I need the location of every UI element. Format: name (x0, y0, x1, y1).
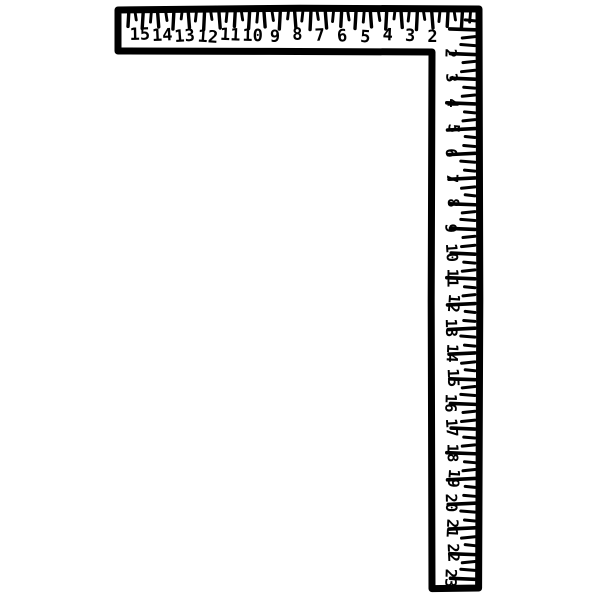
tick-mark (401, 12, 402, 27)
tick-mark (241, 12, 242, 20)
tick-mark (464, 345, 475, 346)
scale-number: 4 (382, 25, 393, 45)
scale-number: 6 (336, 26, 348, 47)
scale-number: 5 (444, 123, 463, 134)
tick-mark (432, 12, 433, 28)
tick-mark (463, 61, 475, 62)
scale-number: 13 (174, 26, 196, 47)
tick-mark (461, 219, 475, 220)
tick-mark (310, 12, 311, 30)
tick-mark (450, 29, 475, 30)
scale-number: 17 (442, 418, 461, 438)
framing-square-figure: 1514131211109876543223456789101112131415… (0, 0, 600, 600)
tick-mark (264, 12, 265, 27)
scale-number: 11 (444, 269, 462, 288)
tick-mark (462, 445, 475, 446)
scale-number: 11 (220, 25, 241, 46)
tick-mark (465, 370, 475, 371)
tick-mark (288, 12, 289, 19)
tick-mark (463, 295, 475, 296)
tick-mark (226, 12, 227, 22)
square-outline (118, 8, 480, 588)
scale-number: 6 (442, 148, 460, 158)
tick-mark (462, 561, 475, 562)
tick-mark (464, 437, 475, 438)
tick-mark (464, 495, 475, 496)
scale-number: 23 (441, 569, 459, 588)
tick-mark (135, 12, 136, 20)
scale-number: 21 (443, 518, 462, 537)
tick-mark (461, 44, 475, 45)
scale-number: 3 (442, 72, 461, 83)
tick-mark (464, 87, 475, 88)
tick-mark (341, 12, 342, 26)
tick-mark (462, 95, 475, 96)
tick-mark (464, 287, 475, 288)
tick-mark (465, 20, 475, 21)
scale-number: 8 (444, 198, 462, 208)
tick-mark (325, 12, 326, 28)
tick-mark (462, 387, 475, 388)
drawing-canvas: 1514131211109876543223456789101112131415… (0, 0, 600, 600)
tick-mark (464, 112, 475, 113)
tick-mark (394, 12, 395, 19)
tick-mark (464, 520, 475, 521)
tick-mark (463, 236, 475, 237)
tick-mark (408, 12, 409, 21)
tick-mark (465, 311, 475, 312)
scale-number: 15 (129, 25, 150, 45)
scale-number: 16 (441, 394, 459, 413)
tick-mark (462, 362, 475, 363)
tick-mark (461, 161, 475, 162)
tick-mark (462, 212, 475, 213)
scale-number: 9 (441, 223, 459, 233)
tick-mark (317, 12, 318, 19)
scale-number: 22 (444, 543, 463, 562)
scale-number: 3 (405, 26, 416, 46)
tick-mark (462, 187, 475, 188)
tick-mark (462, 245, 475, 246)
tick-mark (462, 420, 475, 421)
scale-number: 7 (443, 173, 461, 183)
tick-mark (379, 12, 380, 21)
tick-mark (461, 394, 475, 395)
tick-mark (234, 12, 235, 26)
scale-number: 2 (427, 27, 437, 47)
scale-number: 9 (270, 27, 280, 47)
tick-mark (465, 136, 475, 137)
scale-number: 2 (441, 48, 459, 58)
tick-mark (166, 12, 167, 21)
tick-mark (461, 511, 475, 512)
scale-number: 18 (444, 444, 462, 463)
tick-mark (463, 470, 475, 471)
tick-mark (302, 12, 303, 21)
tick-mark (355, 12, 356, 29)
tick-mark (416, 12, 417, 30)
tick-mark (447, 12, 448, 26)
scale-number: 4 (444, 98, 462, 107)
tick-mark (462, 70, 475, 71)
tick-mark (424, 12, 425, 19)
tick-mark (464, 146, 475, 147)
tick-mark (454, 12, 455, 20)
scale-number: 20 (442, 493, 460, 512)
tick-mark (465, 195, 475, 196)
tick-mark (465, 486, 475, 487)
tick-mark (150, 12, 151, 22)
scale-number: 8 (292, 25, 303, 45)
scale-number: 10 (442, 243, 461, 263)
scale-number: 19 (444, 468, 463, 488)
tick-mark (370, 12, 371, 27)
scale-number: 10 (242, 26, 263, 46)
tick-mark (464, 262, 475, 263)
tick-mark (464, 170, 475, 171)
tick-mark (463, 411, 475, 412)
scale-number: 5 (360, 27, 372, 48)
tick-mark (462, 537, 475, 538)
tick-mark (464, 320, 475, 321)
tick-mark (257, 12, 258, 22)
tick-mark (195, 12, 196, 21)
tick-mark (439, 12, 440, 22)
tick-mark (348, 12, 349, 20)
tick-mark (465, 545, 475, 546)
tick-mark (464, 462, 475, 463)
scale-number: 7 (314, 25, 325, 45)
tick-mark (462, 37, 475, 38)
tick-mark (461, 12, 462, 29)
tick-mark (461, 336, 475, 337)
tick-mark (158, 12, 159, 27)
scale-number: 12 (197, 27, 219, 48)
scale-number: 14 (152, 25, 173, 46)
scale-number: 15 (444, 368, 463, 387)
tick-mark (211, 12, 212, 19)
tick-mark (272, 12, 273, 21)
vertical-scale-numbers: 234567891011121314151617181920212223 (441, 48, 463, 587)
tick-mark (462, 270, 475, 271)
scale-number: 14 (443, 343, 462, 362)
tick-mark (181, 12, 182, 19)
tick-mark (461, 569, 475, 570)
scale-number: 13 (442, 318, 460, 337)
tick-mark (463, 120, 475, 121)
tick-mark (333, 12, 334, 22)
scale-number: 12 (444, 293, 463, 313)
tick-mark (363, 12, 364, 22)
